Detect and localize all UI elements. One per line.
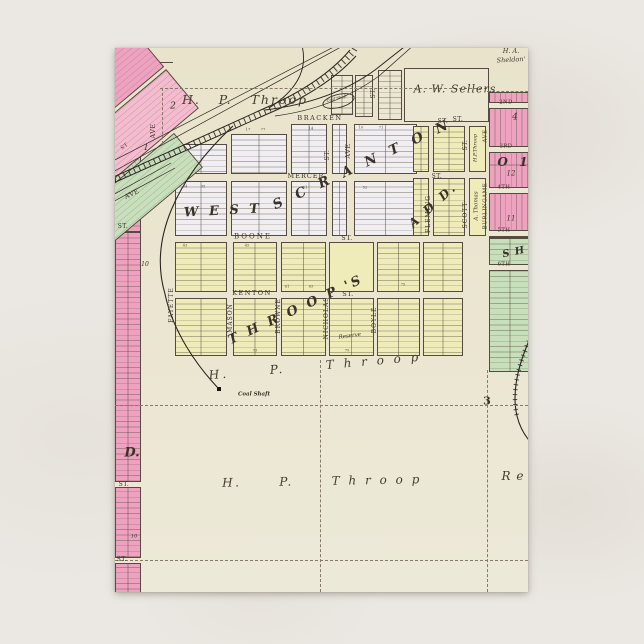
lot-43: 43: [183, 244, 188, 248]
street-st-green-left: ST: [120, 143, 129, 152]
athomas-label: A. Thomas: [474, 191, 480, 220]
street-st-top-v: ST.: [371, 88, 377, 99]
street-6th: 6TH: [498, 262, 511, 267]
lot-45: 45: [245, 244, 250, 248]
street-5th: 5TH: [498, 228, 511, 233]
street-mason: MASON: [228, 303, 234, 333]
street-ave-central: AVE: [345, 143, 352, 158]
owner-sheldon-line2: Sheldon': [497, 56, 526, 64]
street-mercer: MERCER: [288, 173, 325, 180]
lot-14: 14: [309, 127, 314, 131]
street-nicholas: NICHOLAS: [324, 297, 330, 340]
street-ave-left-v: AVE: [150, 123, 157, 138]
lot-34: 34: [183, 185, 188, 189]
street-st-below-sellers: ST.: [438, 119, 449, 125]
owner-throop-top: H. P. Throop: [182, 94, 308, 107]
owner-re-bottom: R e: [502, 470, 525, 482]
num-10b-left: 10: [131, 535, 137, 540]
lot-51: 51: [303, 186, 308, 190]
street-3rd: 3RD: [500, 144, 513, 149]
street-bracken-st: ST.: [453, 117, 464, 123]
num-4-right: 4: [512, 114, 518, 123]
lot-17: 17: [246, 128, 251, 132]
num-12-right: 12: [507, 171, 516, 178]
owner-sellers: A. W. Sellers: [414, 84, 497, 95]
street-st-left-3: ST.: [117, 557, 128, 563]
num-10-left: 10: [141, 262, 149, 268]
lot-52: 52: [363, 186, 368, 190]
street-bracken: BRACKEN: [297, 115, 342, 122]
lot-73: 73: [253, 349, 258, 353]
num-2: 2: [170, 103, 176, 112]
street-burlingame: BURLINGAME: [483, 183, 489, 229]
street-st-left-1: ST.: [118, 224, 129, 230]
num-1: 1: [143, 144, 148, 152]
big-d-left: D.: [124, 447, 139, 460]
big-add: A D D.: [407, 180, 460, 229]
lot-77: 77: [261, 128, 266, 132]
lot-63: 63: [309, 285, 314, 289]
street-ave-left-diag: AVE: [124, 188, 141, 200]
street-st-central-v: ST.: [325, 150, 331, 161]
street-st-left-2: ST.: [119, 482, 130, 488]
street-st-fleming-row: ST.: [432, 174, 443, 180]
street-scott: SCOTT: [463, 202, 469, 229]
street-scott-st: ST.: [463, 140, 469, 151]
lot-71: 71: [379, 126, 384, 130]
street-burlingame-ave: AVE: [483, 129, 489, 142]
map-label-layer: H. P. ThroopA. W. SellersH. A.Sheldon'Co…: [115, 48, 528, 592]
big-west: W E S T: [184, 202, 263, 219]
street-kenton: KENTON: [232, 290, 272, 297]
street-boyle: BOYLE: [372, 307, 378, 334]
street-4th: 4TH: [498, 185, 511, 190]
lot-79: 79: [345, 349, 350, 353]
lot-10: 10: [359, 126, 364, 130]
lot-75: 75: [401, 283, 406, 287]
owner-throop-bottom: H. P. T h r o o p: [222, 473, 422, 488]
section-number-3: 3: [483, 396, 491, 407]
big-sh-right: S H: [502, 246, 527, 261]
street-kenton-st: ST.: [342, 291, 353, 298]
lot-35: 35: [201, 185, 206, 189]
coal-shaft-mid-label: Coal Shaft: [238, 392, 270, 398]
street-boone-st: ST.: [341, 235, 352, 242]
big-o-right: O 1: [497, 156, 528, 168]
street-fleming: FLEMING: [426, 195, 432, 233]
owner-sheldon-line1: H. A.: [503, 48, 520, 54]
num-11-right: 11: [507, 216, 516, 223]
coal-shaft-top-label: Coal Shaft: [327, 96, 348, 105]
reserve-label: Reserve: [338, 333, 361, 342]
owner-throop-mid: H. P. T h r o o p: [208, 351, 421, 382]
postcard-map: H. P. ThroopA. W. SellersH. A.Sheldon'Co…: [115, 48, 528, 592]
hpthroop-block-label: H.P.Throop: [474, 134, 479, 162]
street-browne: BROWNE: [276, 298, 282, 334]
lot-61: 61: [285, 285, 290, 289]
street-boone: BOONE: [234, 234, 272, 241]
street-fayette: FAYETTE: [169, 287, 175, 323]
street-2nd: 2ND: [499, 100, 513, 105]
